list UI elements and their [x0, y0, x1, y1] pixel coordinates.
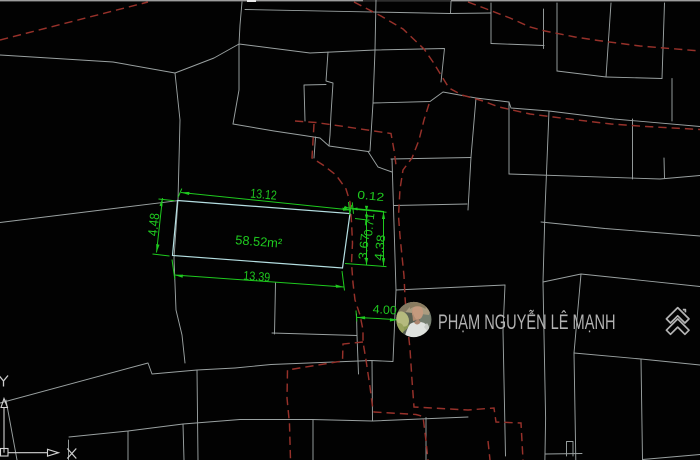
svg-text:4.38: 4.38 — [372, 234, 389, 262]
svg-text:0.71: 0.71 — [361, 212, 377, 237]
svg-text:4.00: 4.00 — [372, 302, 397, 317]
svg-text:13.12: 13.12 — [250, 186, 278, 203]
svg-text:4.48: 4.48 — [145, 212, 162, 236]
svg-text:13.39: 13.39 — [243, 269, 271, 285]
svg-text:3.67: 3.67 — [356, 233, 373, 261]
